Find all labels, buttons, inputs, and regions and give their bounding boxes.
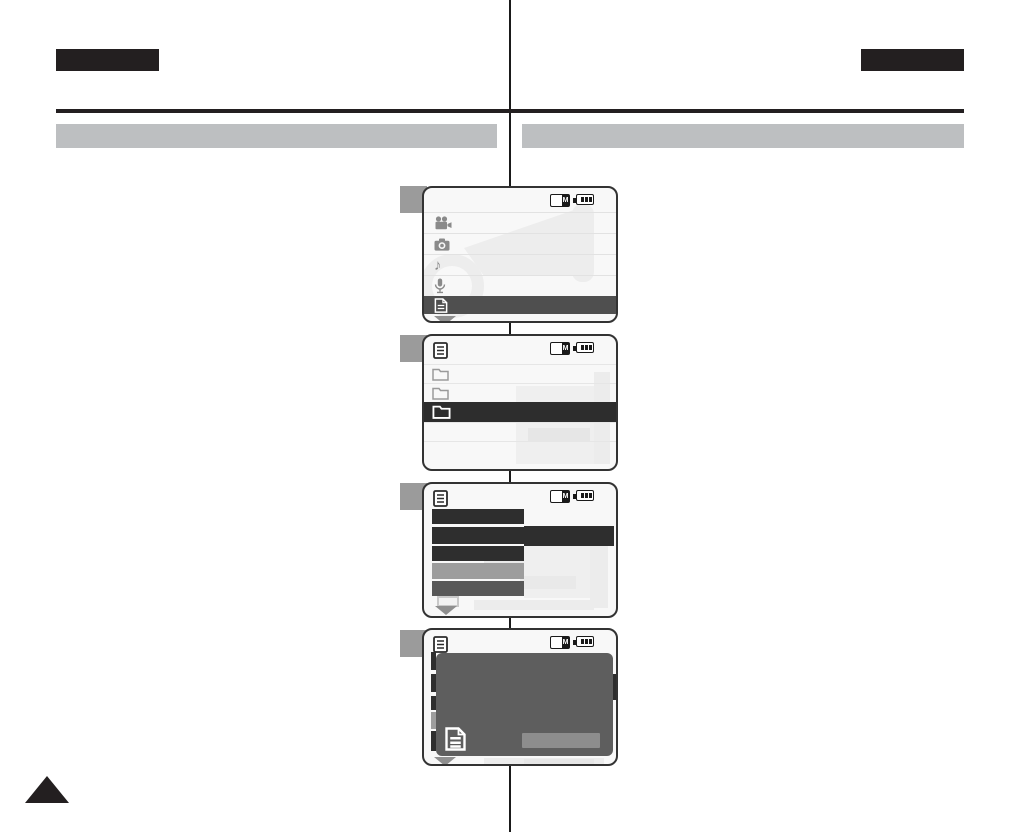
confirmation-popup xyxy=(436,653,613,756)
lcd-screen-folder-list: M xyxy=(422,334,618,471)
battery-icon xyxy=(576,194,594,205)
menu-row-photo xyxy=(424,233,616,254)
option-bar xyxy=(432,563,524,579)
option-bar xyxy=(432,581,524,596)
page-corner-marker xyxy=(25,776,69,803)
folder-icon xyxy=(432,387,449,400)
memory-card-icon: M xyxy=(550,490,570,503)
language-tab-left xyxy=(56,49,159,71)
option-value-bar xyxy=(524,526,614,546)
folder-icon xyxy=(432,368,449,381)
lcd-screen-popup: M xyxy=(422,628,618,766)
folder-row xyxy=(424,383,616,402)
option-bar xyxy=(432,509,524,524)
photo-camera-icon xyxy=(434,238,450,251)
memory-card-icon: M xyxy=(550,342,570,355)
music-note-icon: ♪ xyxy=(434,258,442,273)
battery-icon xyxy=(576,636,594,647)
scroll-down-arrow-icon xyxy=(435,606,457,615)
memory-card-letter: M xyxy=(562,195,569,206)
language-tab-right xyxy=(861,49,964,71)
section-title-bar-left xyxy=(56,124,497,148)
file-list-icon xyxy=(433,636,448,653)
microphone-icon xyxy=(434,278,446,294)
folder-row-selected xyxy=(424,402,616,422)
header-rule xyxy=(56,109,964,113)
file-list-icon xyxy=(433,490,448,507)
menu-row-voice xyxy=(424,275,616,296)
movie-camera-icon xyxy=(434,216,452,230)
section-title-bar-right xyxy=(522,124,964,148)
option-bar xyxy=(432,546,524,561)
scroll-down-arrow-icon xyxy=(434,757,456,766)
menu-row-movie xyxy=(424,212,616,233)
menu-row-file-selected xyxy=(424,296,616,314)
memory-card-icon: M xyxy=(550,194,570,207)
popup-confirm-button xyxy=(522,733,600,748)
battery-icon xyxy=(576,490,594,501)
file-document-icon xyxy=(445,727,466,751)
folder-row-empty xyxy=(424,422,616,441)
lcd-screen-options: M xyxy=(422,482,618,618)
option-bar-selected xyxy=(432,527,524,544)
folder-icon xyxy=(432,405,451,419)
manual-page: M ♪ xyxy=(0,0,1020,832)
folder-row xyxy=(424,364,616,383)
folder-row-empty xyxy=(424,441,616,460)
battery-icon xyxy=(576,342,594,353)
lcd-screen-main-menu: M ♪ xyxy=(422,186,618,323)
menu-row-music: ♪ xyxy=(424,254,616,275)
file-list-icon xyxy=(433,342,448,359)
scroll-down-arrow-icon xyxy=(434,316,456,323)
file-document-icon xyxy=(434,298,448,313)
memory-card-icon: M xyxy=(550,636,570,649)
